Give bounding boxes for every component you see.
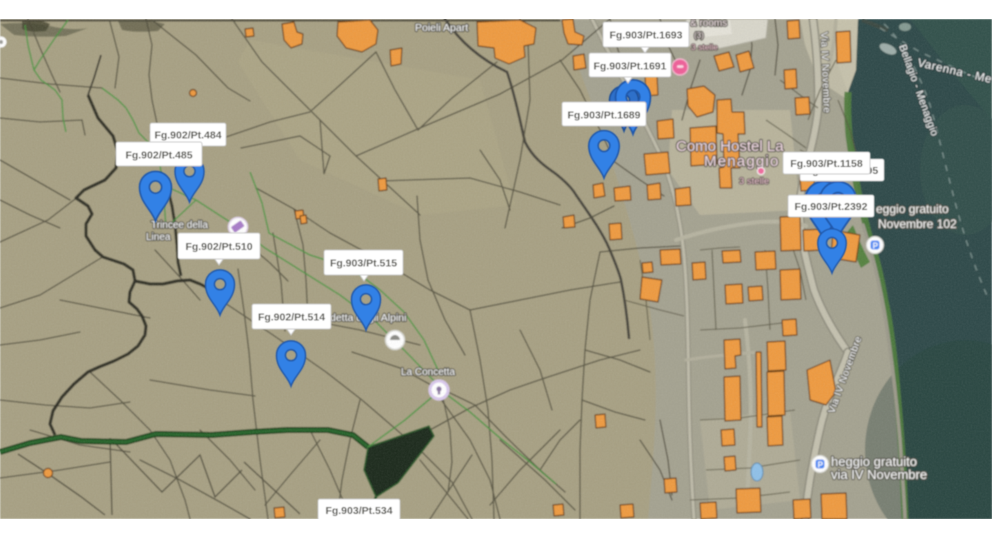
- svg-text:Fg.902/Pt.485: Fg.902/Pt.485: [125, 150, 192, 162]
- svg-text:Fg.902/Pt.510: Fg.902/Pt.510: [185, 241, 252, 253]
- svg-text:Fg.903/Pt.1691: Fg.903/Pt.1691: [594, 61, 667, 73]
- svg-text:Fg.902/Pt.484: Fg.902/Pt.484: [154, 130, 221, 142]
- svg-text:Fg.903/Pt.1158: Fg.903/Pt.1158: [790, 158, 863, 170]
- svg-text:Fg.903/Pt.2392: Fg.903/Pt.2392: [795, 201, 868, 213]
- svg-text:Fg.903/Pt.1689: Fg.903/Pt.1689: [568, 110, 641, 122]
- svg-text:Fg.903/Pt.534: Fg.903/Pt.534: [325, 505, 392, 517]
- svg-text:Fg.903/Pt.515: Fg.903/Pt.515: [330, 258, 397, 270]
- svg-text:Fg.903/Pt.1693: Fg.903/Pt.1693: [610, 30, 683, 42]
- svg-text:Fg.902/Pt.514: Fg.902/Pt.514: [258, 312, 325, 324]
